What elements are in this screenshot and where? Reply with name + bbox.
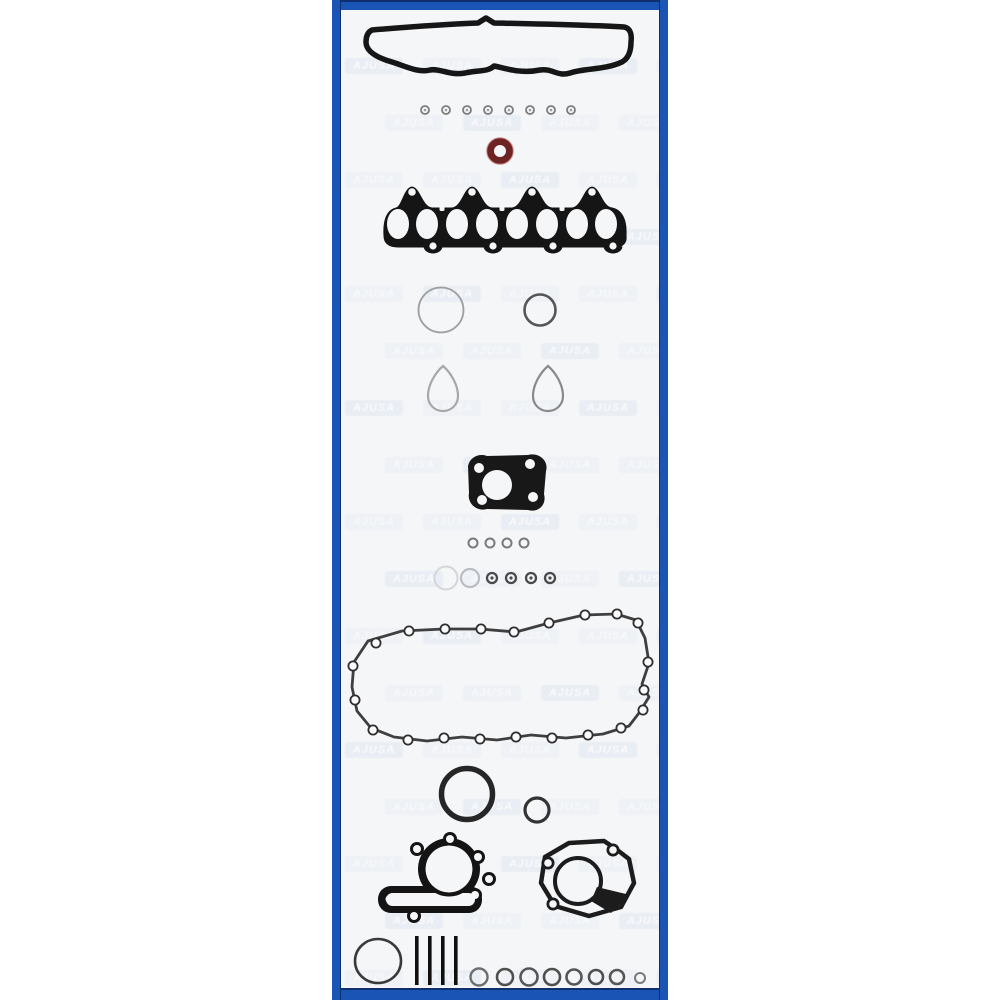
panel-border-bottom xyxy=(332,988,668,1000)
gasket-set-illustration xyxy=(332,0,668,1000)
water-pump-gasket-left xyxy=(378,832,496,923)
page-background: AJUSAAJUSAAJUSAAJUSAAJUSAAJUSAAJUSAAJUSA… xyxy=(0,0,1000,1000)
seal-ring-row xyxy=(471,969,646,986)
valve-cover-gasket xyxy=(366,18,631,74)
round-gasket-small xyxy=(525,295,556,326)
product-image-panel: AJUSAAJUSAAJUSAAJUSAAJUSAAJUSAAJUSAAJUSA… xyxy=(332,0,668,1000)
washer-row xyxy=(469,539,529,548)
round-gasket-large xyxy=(419,288,464,333)
oil-pan-gasket xyxy=(348,609,652,744)
front-seal xyxy=(355,939,401,983)
manifold-gasket xyxy=(384,187,626,253)
cylinder-head-bolts xyxy=(415,936,458,985)
crankshaft-seal xyxy=(442,769,493,820)
panel-border-right xyxy=(659,0,668,1000)
red-o-ring xyxy=(487,138,514,165)
water-pump-gasket-right xyxy=(541,841,634,916)
panel-border-top xyxy=(332,0,668,10)
valve-stem-seals xyxy=(421,106,575,114)
auxiliary-seal xyxy=(525,798,549,822)
panel-border-left xyxy=(332,0,341,1000)
camshaft-seal-right xyxy=(533,366,563,411)
exhaust-flange-gasket xyxy=(468,454,547,510)
camshaft-seal-left xyxy=(428,366,458,411)
grommet-row xyxy=(435,567,556,590)
